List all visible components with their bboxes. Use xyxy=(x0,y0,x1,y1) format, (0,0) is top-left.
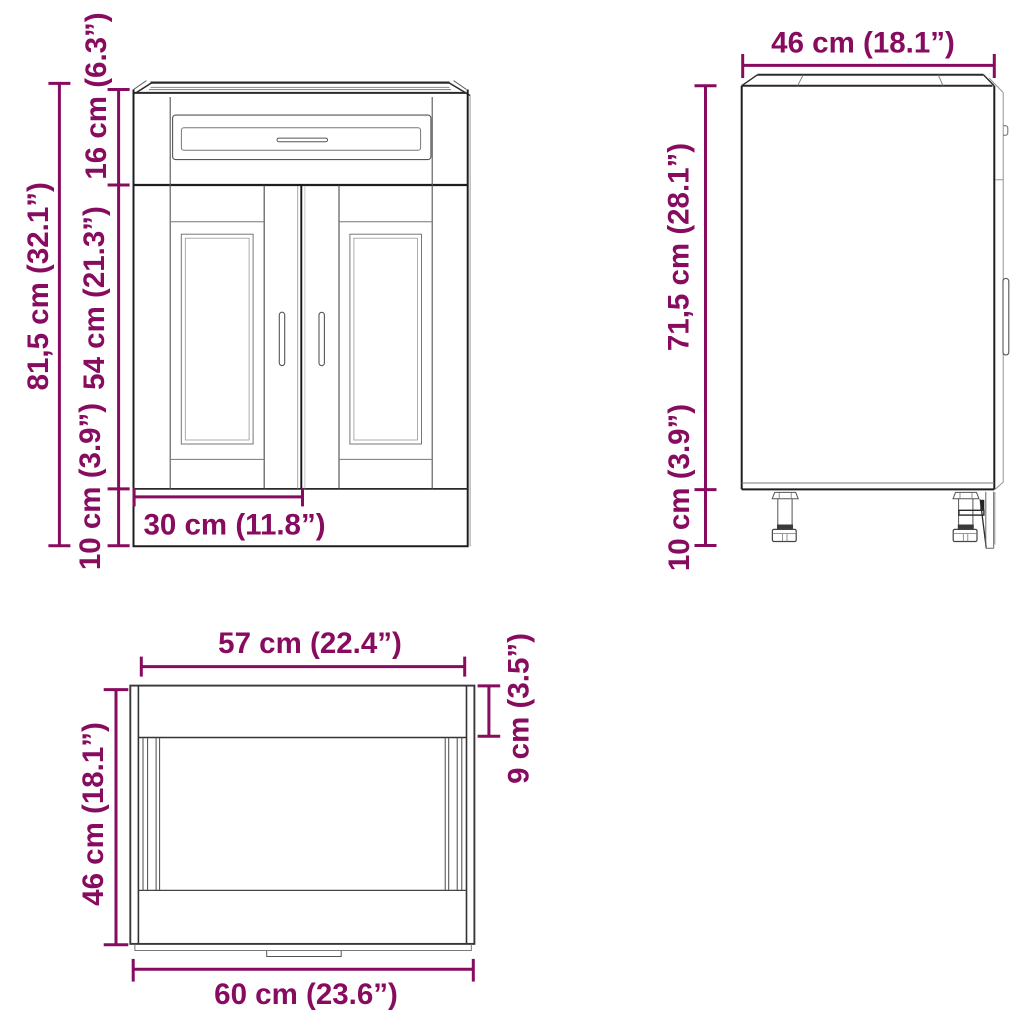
svg-text:16 cm (6.3”): 16 cm (6.3”) xyxy=(80,12,113,179)
svg-text:10 cm (3.9”): 10 cm (3.9”) xyxy=(74,403,107,570)
svg-text:46 cm (18.1”): 46 cm (18.1”) xyxy=(77,722,110,906)
svg-text:54 cm (21.3”): 54 cm (21.3”) xyxy=(78,206,111,390)
svg-text:30 cm (11.8”): 30 cm (11.8”) xyxy=(144,509,326,542)
svg-text:60 cm (23.6”): 60 cm (23.6”) xyxy=(214,978,398,1011)
svg-text:57 cm (22.4”): 57 cm (22.4”) xyxy=(218,627,402,660)
svg-text:10 cm (3.9”): 10 cm (3.9”) xyxy=(663,404,696,571)
svg-text:9 cm (3.5”): 9 cm (3.5”) xyxy=(503,633,536,784)
svg-text:46 cm (18.1”): 46 cm (18.1”) xyxy=(771,27,955,60)
svg-text:81,5 cm (32.1”): 81,5 cm (32.1”) xyxy=(22,182,55,390)
svg-text:71,5 cm (28.1”): 71,5 cm (28.1”) xyxy=(663,143,696,351)
